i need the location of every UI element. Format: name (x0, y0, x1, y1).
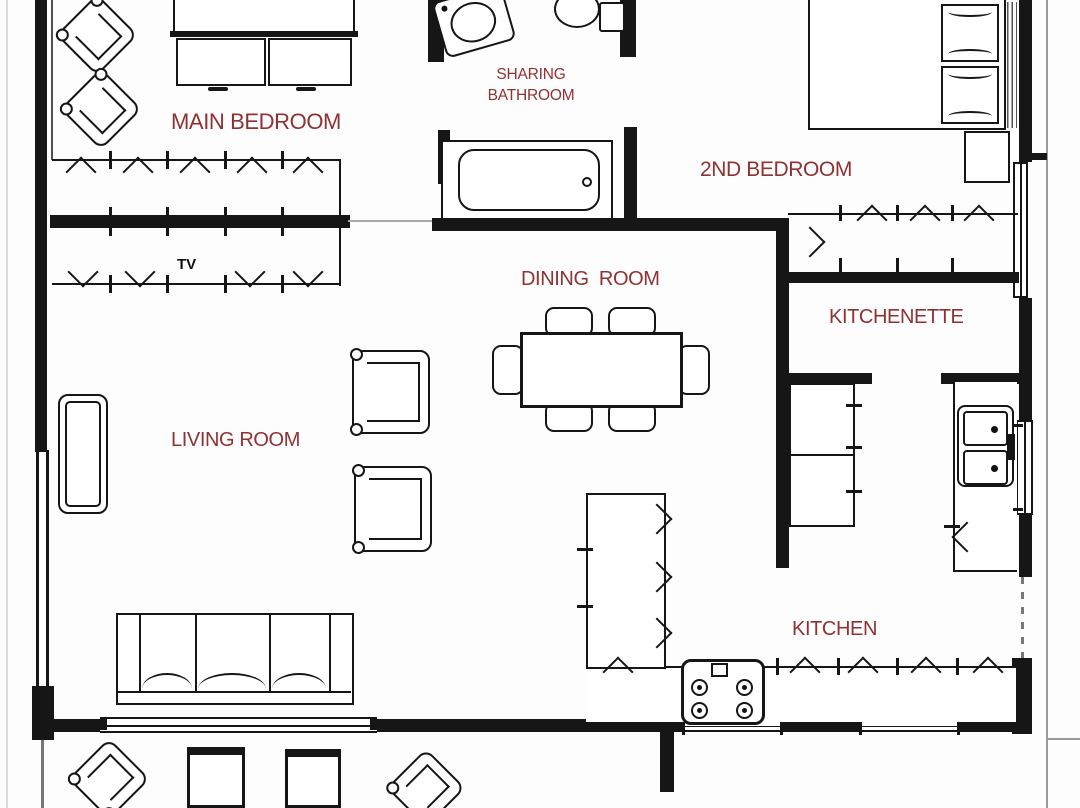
counter-tick (837, 658, 840, 675)
bed2-pillow-bottom (941, 66, 999, 124)
wall-left-inner-face (51, 0, 53, 160)
living-armchair-2 (354, 466, 432, 552)
armchair-seat (79, 87, 126, 134)
wall-right-cap (1032, 153, 1047, 160)
main-bed-foot (296, 87, 316, 91)
sofa (116, 613, 354, 705)
stove-burner (691, 679, 708, 696)
sliding-door-cap-left (100, 719, 107, 730)
wall-left-upper (35, 0, 47, 452)
room-label-main-bedroom: MAIN BEDROOM (171, 110, 341, 134)
closet-tick (109, 151, 112, 169)
armchair-seat (75, 13, 122, 60)
armchair-arm-curl (88, 0, 106, 10)
patio-chair-1 (187, 747, 245, 808)
wall-right-lower (1019, 513, 1032, 577)
stove (681, 659, 765, 725)
bedroom-armchair-1 (56, 0, 138, 76)
armchair-seat (405, 764, 450, 808)
armchair-arm-curl (65, 770, 83, 788)
patio-armchair-2 (386, 748, 465, 808)
opening-break-line (348, 220, 432, 222)
bedroom-armchair-2 (60, 68, 142, 150)
room-label-bathroom: BATHROOM (466, 85, 596, 106)
counter-tick (896, 658, 899, 675)
room-label-sharing-bathroom: SHARING BATHROOM (466, 64, 596, 106)
kitchen-sink-basin-bottom (963, 450, 1008, 485)
wardrobe-centre-wall (50, 215, 350, 228)
bed2-pillow-top (941, 4, 999, 62)
counter-tick (776, 658, 779, 675)
stove-burner (736, 702, 753, 719)
right-wall-opening-dashed (1021, 577, 1024, 658)
closet2-door-chevron (794, 226, 825, 257)
armchair-arm-curl (384, 779, 402, 797)
pillow-curve (948, 49, 992, 59)
patio-armchair-1 (68, 738, 150, 808)
burner-dot (697, 708, 702, 713)
sofa-arm-line-right (329, 615, 331, 691)
main-bed (173, 0, 355, 34)
bedroom2-right-window-mid (1020, 164, 1022, 296)
scan-edge-line (6, 0, 8, 808)
armchair-seat (367, 362, 420, 422)
room-label-living-room: LIVING ROOM (171, 429, 300, 451)
closet-tick (281, 151, 284, 169)
armchair-seat (87, 754, 134, 801)
sink-drain-dot (991, 426, 998, 433)
burner-dot (742, 685, 747, 690)
patio-left-edge (41, 740, 44, 808)
main-bed-foot (208, 87, 228, 91)
closet-tick (166, 151, 169, 169)
toilet-tank (599, 2, 625, 32)
armchair-seat (369, 478, 422, 540)
sofa-cushion-curve (198, 673, 266, 689)
room-label-dining-room: DINING ROOM (521, 268, 660, 290)
island-tick (577, 605, 593, 608)
sink-faucet-dot (441, 5, 448, 12)
bottom-right-boundary-line (1046, 738, 1080, 740)
patio-chair-2 (285, 749, 341, 808)
tv-label: TV (177, 256, 196, 273)
closet2-hatch-chevron (856, 204, 887, 235)
closet-hatch-chevron (236, 156, 267, 187)
main-bed-pillow-right (268, 38, 352, 86)
sliding-door-cap-right (370, 719, 377, 730)
sofa-cushion-divider (195, 615, 197, 691)
sofa-cushion-divider (269, 615, 271, 691)
stove-control-panel (711, 663, 728, 677)
patio-divider-wall (660, 732, 674, 792)
sofa-cushion-curve (142, 673, 192, 689)
floor-plan: MAIN BEDROOM SHARING BATHROOM 2ND BEDROO… (0, 0, 1080, 808)
right-boundary-line (1046, 0, 1048, 808)
armchair-arm-curl (350, 348, 363, 361)
wall-right-mid (1019, 298, 1032, 422)
tv-console-bottom-line (52, 283, 340, 285)
sink-drain-dot (991, 465, 998, 472)
tv-console-tick (166, 275, 169, 293)
armchair-arm-curl (53, 26, 71, 44)
room-label-2nd-bedroom: 2ND BEDROOM (700, 158, 852, 181)
sideboard (58, 394, 108, 514)
sink-basin (446, 0, 501, 48)
closet2-bottom-tick (896, 258, 899, 273)
cabinet-tick (846, 490, 862, 493)
island-tick (577, 548, 593, 551)
burner-dot (697, 685, 702, 690)
room-label-kitchen: KITCHEN (792, 618, 877, 640)
sofa-cushion-curve (272, 673, 326, 689)
dining-table (520, 332, 683, 408)
bathtub-drain (582, 177, 592, 187)
bathroom-sink (431, 0, 516, 59)
closet2-bottom-wall (788, 272, 1019, 283)
armchair-arm-curl (352, 541, 365, 554)
main-bed-headboard (170, 31, 358, 37)
wall-tick (281, 207, 284, 236)
kitchenette-left-wall (776, 218, 789, 568)
cabinet-tick (846, 404, 862, 407)
kitchen-window-left-mid (685, 726, 780, 728)
sofa-back-line (118, 691, 351, 693)
counter-tick (956, 658, 959, 675)
stove-burner (691, 702, 708, 719)
bed2-headboard-hatch (1007, 2, 1017, 128)
bedroom2-dining-wall (645, 218, 788, 231)
room-label-kitchenette: KITCHENETTE (829, 306, 964, 328)
living-armchair-1 (352, 350, 430, 434)
wardrobe-right-line (339, 159, 341, 286)
wall-tick (224, 207, 227, 236)
closet-hatch-chevron (65, 156, 96, 187)
burner-dot (742, 708, 747, 713)
bed2-nightstand (964, 131, 1010, 183)
closet2-tick (839, 205, 842, 221)
closet-hatch-chevron (122, 156, 153, 187)
kitchen-right-window (1016, 420, 1033, 515)
toilet-bowl (554, 0, 600, 28)
wall-tick (166, 207, 169, 236)
closet-hatch-chevron (292, 156, 323, 187)
room-label-sharing: SHARING (466, 64, 596, 85)
bathtub (458, 149, 600, 211)
sink-window-bracket (1013, 424, 1023, 427)
pillow-curve (948, 69, 992, 79)
wall-tick (109, 207, 112, 236)
sliding-door (100, 717, 377, 733)
sofa-arm-line-left (139, 615, 141, 691)
closet2-tick (896, 205, 899, 221)
pillow-curve (948, 7, 992, 17)
left-window-line-inner (46, 450, 49, 690)
left-window-line-outer (36, 450, 39, 690)
armchair-arm-curl (350, 423, 363, 436)
kitchen-right-window-mid (1024, 422, 1026, 513)
tv-console-tick (109, 275, 112, 293)
kitchen-sink-basin-top (963, 411, 1008, 446)
main-bed-pillow-left (176, 38, 266, 86)
closet2-hatch-chevron (909, 204, 940, 235)
kitchen-window-right-mid (862, 726, 957, 728)
closet2-bottom-tick (951, 258, 954, 273)
cabinet-tick (846, 446, 862, 449)
bathroom-wall-right-lower (624, 127, 637, 222)
armchair-arm-curl (100, 804, 118, 808)
armchair-arm-curl (352, 464, 365, 477)
sliding-door-mid-rail (106, 725, 371, 727)
armchair-arm-curl (57, 100, 75, 118)
sink-faucet (1007, 434, 1015, 460)
tv-console-tick (224, 275, 227, 293)
closet2-bottom-tick (839, 258, 842, 273)
sideboard-inner (65, 401, 101, 507)
closet2-hatch-chevron (963, 204, 994, 235)
sink-counter-tick (944, 525, 960, 528)
pillow-curve (948, 111, 992, 121)
tv-console-tick (281, 275, 284, 293)
sink-window-bracket (1013, 508, 1023, 511)
closet-hatch-chevron (179, 156, 210, 187)
closet-tick (224, 151, 227, 169)
stove-burner (736, 679, 753, 696)
wall-right-top (1019, 0, 1032, 162)
closet2-tick (951, 205, 954, 221)
